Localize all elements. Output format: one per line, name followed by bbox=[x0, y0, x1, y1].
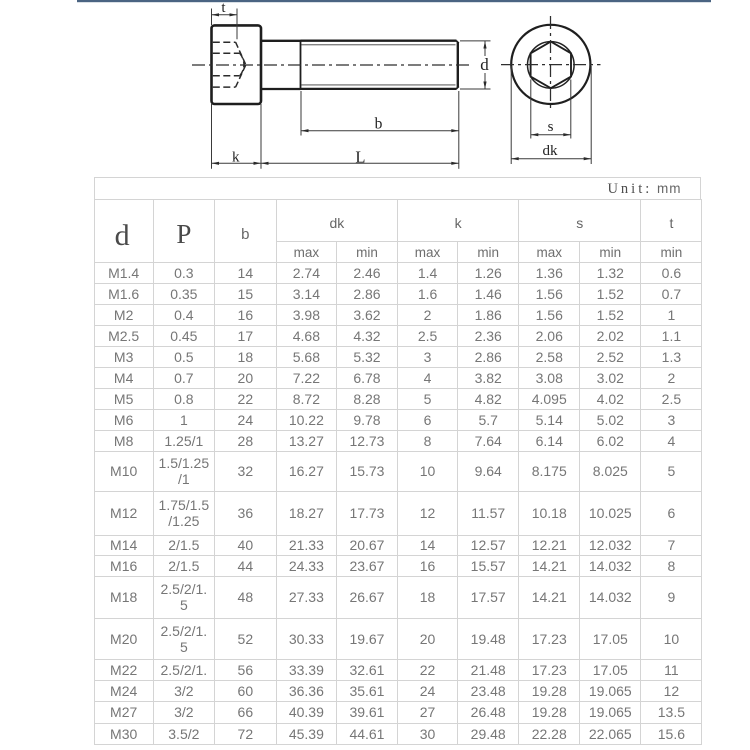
svg-text:t: t bbox=[221, 0, 226, 16]
svg-text:d: d bbox=[480, 55, 489, 74]
svg-text:b: b bbox=[375, 115, 383, 132]
svg-text:dk: dk bbox=[543, 143, 559, 159]
svg-text:s: s bbox=[548, 119, 554, 135]
svg-text:L: L bbox=[355, 147, 365, 166]
svg-text:k: k bbox=[232, 149, 240, 165]
